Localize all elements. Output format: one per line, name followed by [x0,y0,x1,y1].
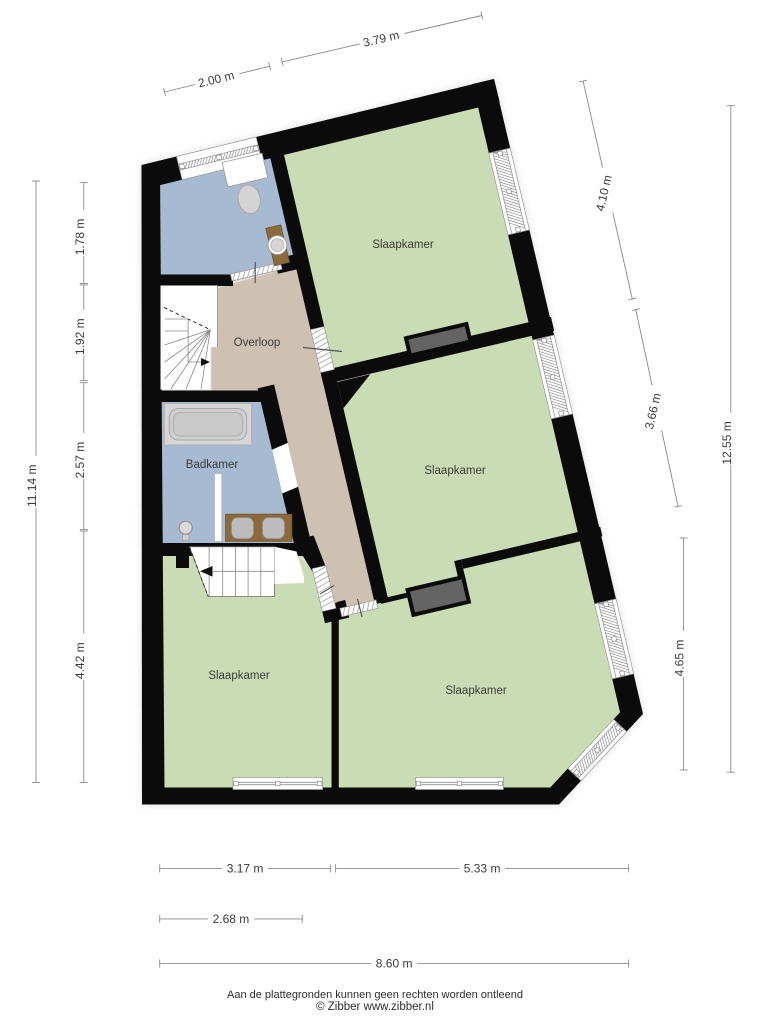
svg-text:Slaapkamer: Slaapkamer [424,465,486,477]
svg-text:1.78 m: 1.78 m [73,219,87,256]
svg-text:11.14 m: 11.14 m [25,465,39,507]
svg-text:Aan de plattegronden kunnen ge: Aan de plattegronden kunnen geen rechten… [227,989,523,1001]
svg-text:12.55 m: 12.55 m [720,421,734,464]
svg-text:2.57 m: 2.57 m [73,442,87,479]
svg-text:3.17 m: 3.17 m [227,861,264,875]
svg-text:Slaapkamer: Slaapkamer [372,239,434,251]
svg-text:5.33 m: 5.33 m [464,861,501,875]
svg-text:© Zibber www.zibber.nl: © Zibber www.zibber.nl [316,1001,434,1013]
svg-text:1.92 m: 1.92 m [73,318,87,355]
svg-text:8.60 m: 8.60 m [376,956,413,970]
svg-text:Slaapkamer: Slaapkamer [445,685,507,697]
svg-text:Slaapkamer: Slaapkamer [208,670,270,682]
svg-text:Badkamer: Badkamer [186,459,239,471]
svg-text:Overloop: Overloop [234,337,281,349]
svg-text:4.42 m: 4.42 m [73,642,87,679]
svg-text:4.65 m: 4.65 m [673,640,687,677]
svg-text:2.68 m: 2.68 m [213,912,250,926]
